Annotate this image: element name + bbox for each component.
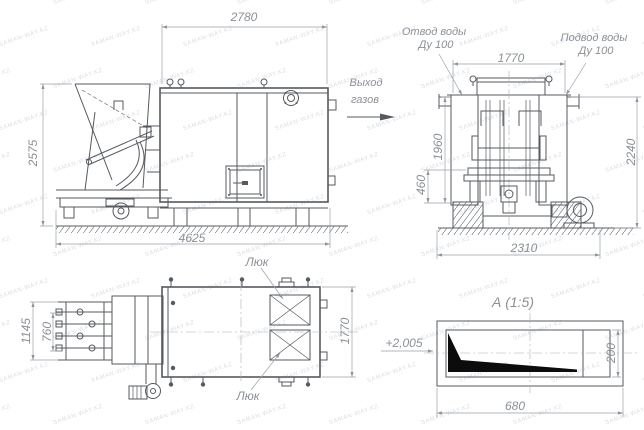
dim-front-body-height: 1960 <box>431 134 445 161</box>
dim-front-foundation-width: 2310 <box>511 241 538 255</box>
boiler-drawing <box>0 0 644 430</box>
plan-view <box>56 268 360 399</box>
dim-detail-ref-length: +2,005 <box>385 336 422 350</box>
dim-front-width-top: 1770 <box>498 51 525 65</box>
front-view <box>438 54 634 240</box>
dim-plan-feeder-width: 1145 <box>19 318 33 344</box>
label-gas-exit-line1: Выход <box>349 77 382 89</box>
label-water-outlet-line1: Отвод воды <box>402 26 466 38</box>
dim-side-body-width: 2780 <box>231 10 258 24</box>
dim-plan-feeder-inner-width: 760 <box>40 322 54 342</box>
dim-front-overall-height: 2240 <box>624 139 638 166</box>
label-gas-exit-line2: газов <box>351 94 379 106</box>
label-water-outlet-line2: Ду 100 <box>419 39 454 51</box>
dim-detail-height: 200 <box>604 343 618 363</box>
dim-plan-depth: 1770 <box>338 318 352 345</box>
dim-front-base-height: 460 <box>414 175 428 195</box>
side-view <box>56 79 348 233</box>
gas-exit-arrow <box>347 114 395 121</box>
detail-a-title: А (1:5) <box>492 294 534 310</box>
dim-detail-width: 680 <box>505 399 525 413</box>
side-view-dimensions <box>40 24 330 248</box>
dim-side-overall-length: 4625 <box>179 231 206 245</box>
dim-side-height: 2575 <box>26 140 40 167</box>
label-water-inlet-line2: Ду 100 <box>579 45 614 57</box>
label-water-inlet-line1: Подвод воды <box>561 32 628 44</box>
label-hatch-top: Люк <box>246 255 269 269</box>
technical-drawing-page: SAMAN-WAY.KZSAMAN-WAY.KZSAMAN-WAY.KZSAMA… <box>0 0 644 430</box>
label-hatch-bottom: Люк <box>237 389 260 403</box>
